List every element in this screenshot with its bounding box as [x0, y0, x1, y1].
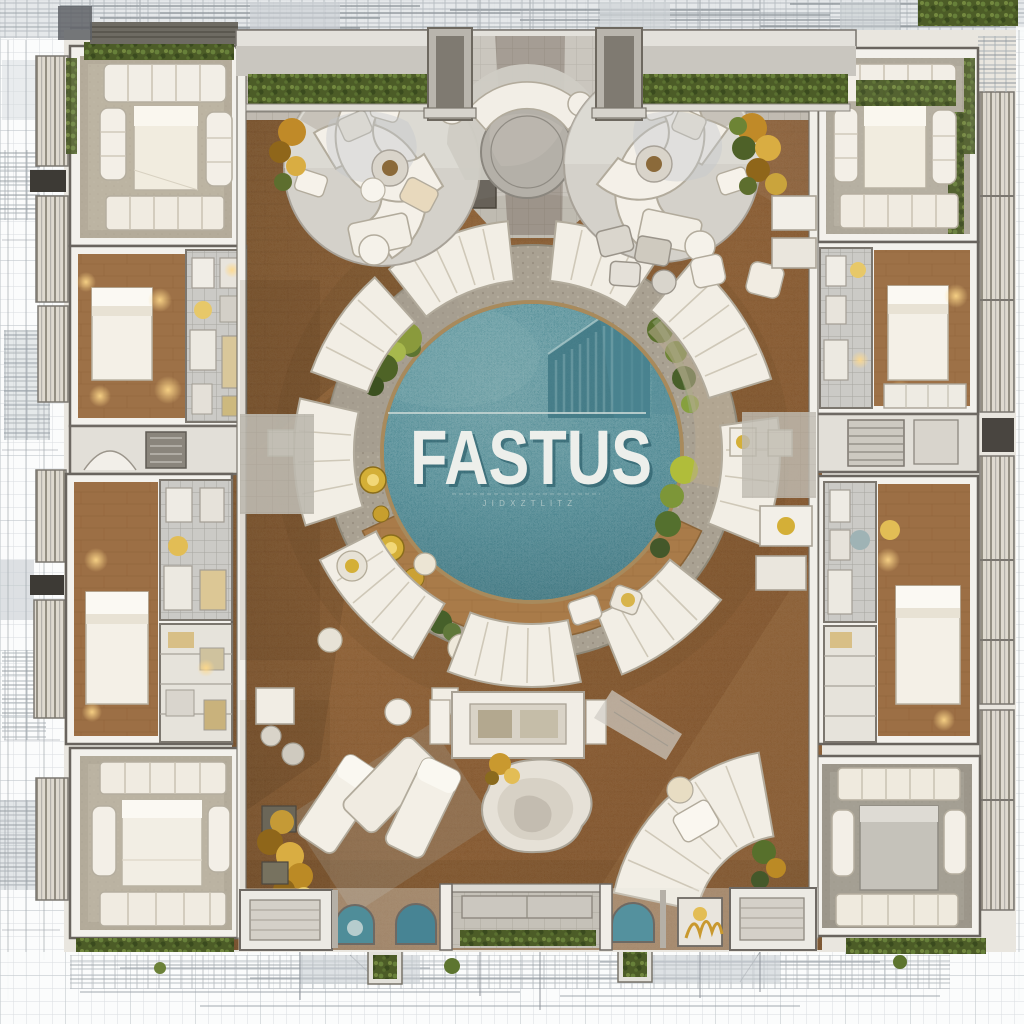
svg-text:J I D X Z T L I T Z: J I D X Z T L I T Z [482, 499, 573, 508]
svg-text:FASTUS: FASTUS [410, 415, 652, 501]
